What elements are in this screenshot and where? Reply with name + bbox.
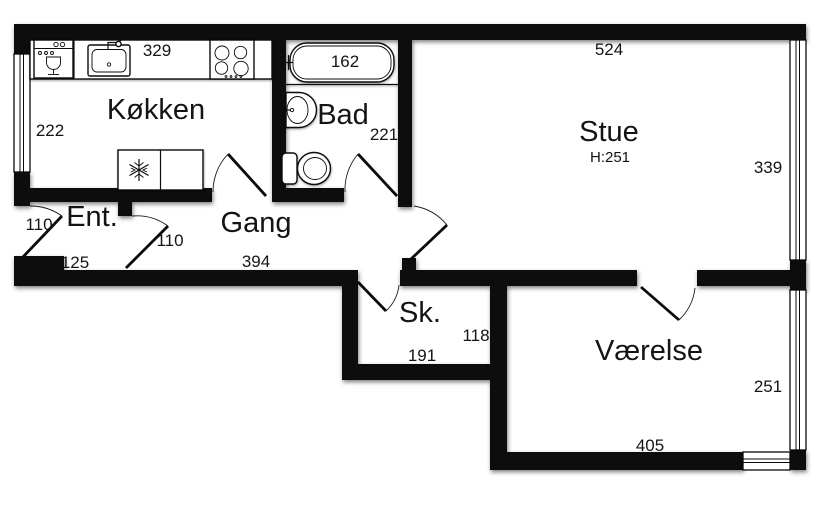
door-gang-stue	[410, 206, 447, 260]
dim-vaerelse-bottom: 405	[636, 436, 664, 455]
door-arc	[414, 206, 447, 225]
room-label-stue: Stue	[579, 116, 639, 148]
door-arc	[132, 216, 168, 226]
ceiling-height-stue: H:251	[590, 149, 630, 166]
room-label-bad: Bad	[317, 99, 369, 131]
door-leaf	[641, 287, 679, 320]
door-leaf	[410, 225, 447, 260]
dim-bad-right: 221	[370, 125, 398, 144]
wall-right-mid-block	[790, 260, 806, 290]
dim-ent-door: 110	[25, 215, 52, 234]
wall-right-bottom-corner	[790, 450, 806, 470]
room-label-sk: Sk.	[399, 297, 441, 329]
stove-icon	[210, 40, 254, 79]
door-arc	[386, 285, 399, 311]
wall-bottom-ent-gang	[64, 270, 358, 286]
room-label-kokken: Køkken	[107, 94, 205, 126]
dim-stue-right: 339	[754, 158, 782, 177]
dim-vaerelse-right: 251	[754, 377, 782, 396]
dim-kokken-top: 329	[143, 41, 171, 60]
dim-gang-door: 110	[156, 231, 183, 250]
floor-plan: Køkken 329 222 Bad 162 221 Stue H:251 52…	[0, 0, 830, 510]
window-kokken-left	[14, 54, 30, 172]
window-vaerelse-bottom	[743, 452, 790, 470]
wall-bad-stue	[398, 24, 412, 207]
dim-kokken-left: 222	[36, 121, 64, 140]
wall-vaerelse-bottom	[490, 452, 743, 470]
door-arc	[345, 154, 358, 192]
walls-group	[14, 24, 806, 470]
door-sk	[358, 282, 399, 311]
door-leaf	[358, 282, 386, 311]
window-stue-right	[790, 40, 806, 260]
floor-plan-page: Køkken 329 222 Bad 162 221 Stue H:251 52…	[0, 0, 830, 510]
door-arc	[213, 154, 228, 192]
wall-left-bottom-corner	[14, 256, 64, 286]
toilet-icon	[282, 153, 331, 185]
wall-vaerelse-left	[490, 286, 507, 470]
wall-ent-stub	[118, 188, 132, 216]
door-stue-vaerelse	[641, 287, 695, 320]
wall-right-top-corner	[790, 24, 806, 40]
fridge-icon	[118, 150, 203, 190]
dim-gang-bottom: 394	[242, 252, 270, 271]
door-bad	[345, 154, 397, 196]
door-arc	[679, 288, 695, 320]
dim-sk-right: 118	[462, 326, 489, 345]
room-label-vaerelse: Værelse	[595, 335, 703, 367]
door-leaf	[228, 154, 266, 196]
room-label-gang: Gang	[221, 207, 292, 239]
wall-sk-bottom	[342, 364, 507, 380]
wall-bottom-stue-right	[697, 270, 806, 286]
dim-stue-top: 524	[595, 40, 623, 59]
washbasin-icon	[283, 93, 317, 128]
door-kokken	[213, 154, 266, 196]
wall-bad-bottom	[272, 188, 344, 202]
dim-bathtub: 162	[331, 52, 359, 71]
window-vaerelse-right	[790, 290, 806, 450]
dim-ent-bottom: 125	[61, 253, 89, 272]
dishwasher-icon	[34, 40, 73, 78]
wall-bottom-stue-left	[400, 270, 637, 286]
wall-stub-stue-door	[402, 258, 416, 272]
door-leaf	[358, 154, 397, 196]
room-label-ent: Ent.	[66, 201, 118, 233]
wall-left-upper	[14, 24, 30, 54]
dim-sk-bottom: 191	[408, 346, 436, 365]
